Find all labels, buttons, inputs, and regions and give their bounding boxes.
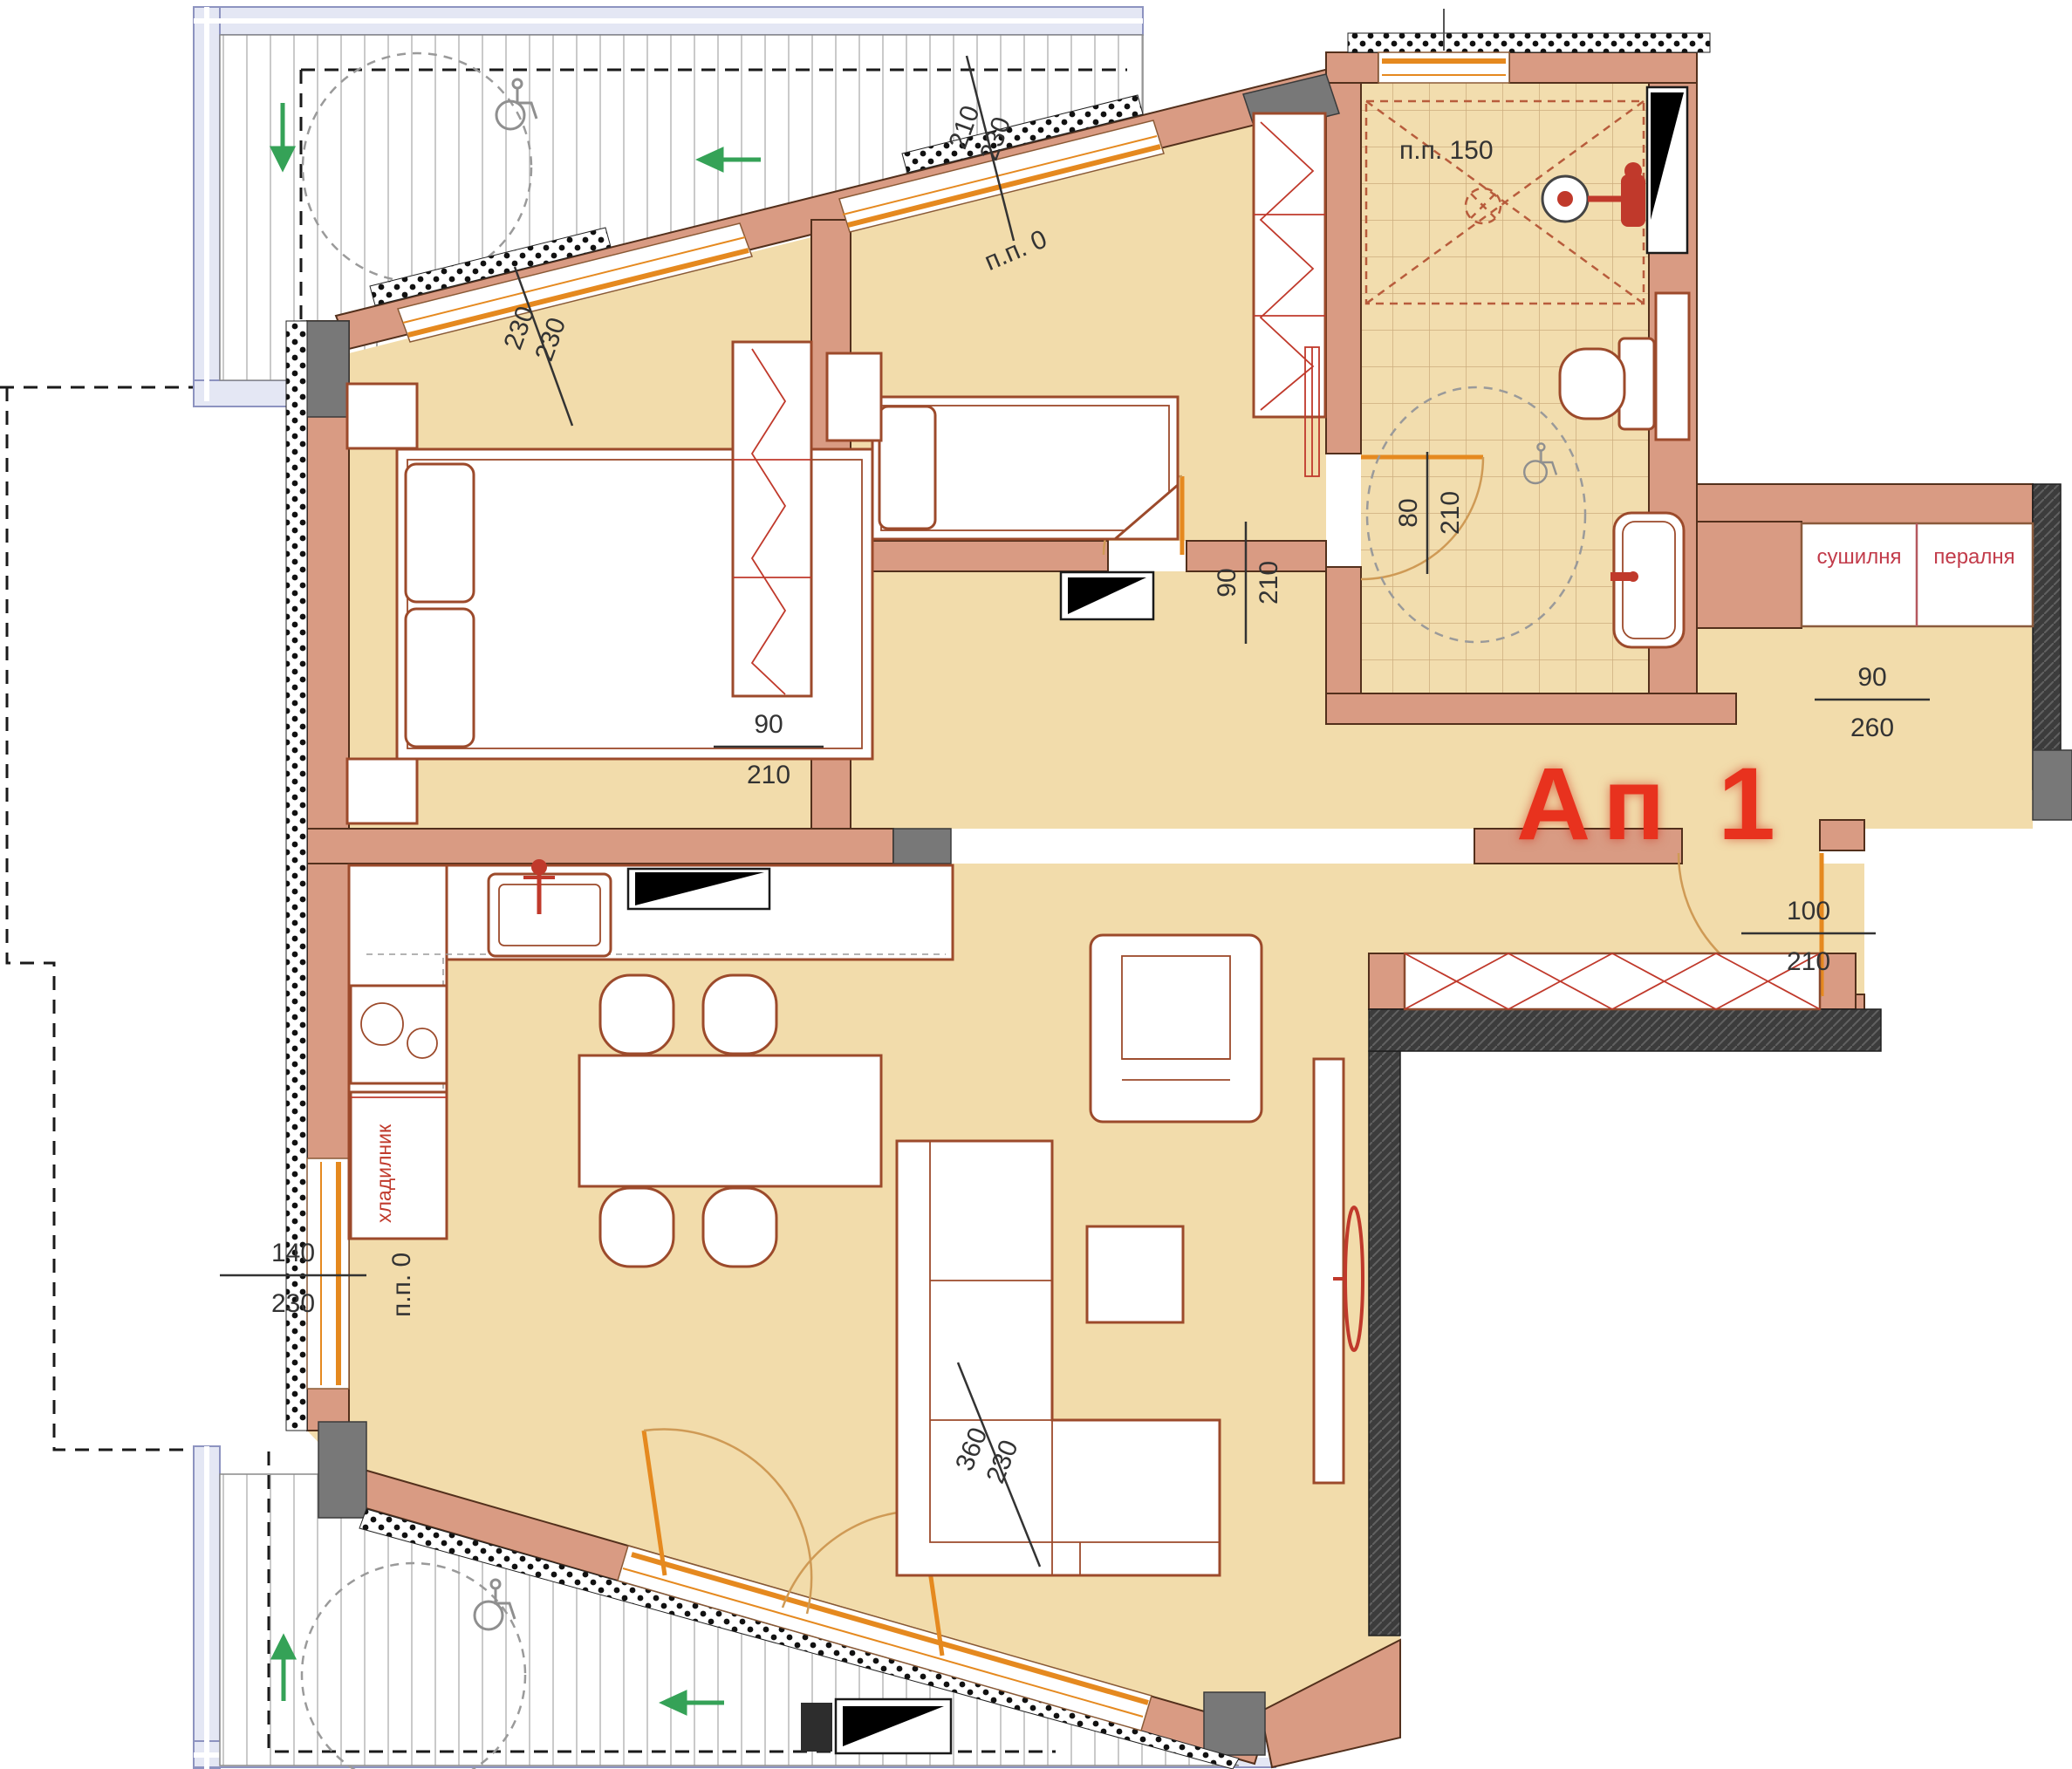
stove — [351, 986, 447, 1083]
bathroom-window — [1378, 52, 1509, 83]
living-window-left — [307, 1158, 349, 1389]
washer-dryer-niche: сушилня пералня — [1802, 523, 2033, 626]
toilet — [1560, 338, 1654, 429]
tv-unit — [1314, 1059, 1344, 1483]
washer-label: пералня — [1933, 545, 2014, 569]
shower-head-icon — [1621, 162, 1645, 227]
fridge-label: хладилник — [373, 1124, 395, 1223]
svg-text:90: 90 — [754, 710, 783, 739]
svg-text:210: 210 — [1787, 947, 1830, 976]
dryer-label: сушилня — [1817, 545, 1902, 569]
kitchen-sink — [489, 859, 611, 956]
nightstand — [827, 353, 881, 441]
fridge: хладилник — [351, 1092, 447, 1239]
radiator — [628, 869, 769, 909]
label-pp0-left: п.п. 0 — [387, 1253, 416, 1317]
svg-text:210: 210 — [1436, 491, 1465, 535]
floor-plan: сушилня пералня хладилник — [0, 0, 2072, 1769]
label-pp150: п.п. 150 — [1399, 136, 1494, 165]
pillow — [879, 406, 935, 529]
apartment-label: Ап 1 — [1516, 747, 1788, 862]
wardrobe — [1254, 113, 1325, 417]
radiator-hall — [1061, 572, 1153, 619]
svg-text:80: 80 — [1394, 498, 1423, 527]
pillow — [406, 464, 474, 602]
nightstand — [347, 384, 417, 448]
coffee-table — [1087, 1226, 1183, 1322]
hall-closet — [1405, 953, 1820, 1009]
armchair — [1091, 935, 1262, 1122]
svg-text:140: 140 — [271, 1239, 315, 1267]
svg-text:230: 230 — [271, 1289, 315, 1318]
svg-text:260: 260 — [1850, 714, 1894, 742]
bathroom-sink — [1610, 513, 1684, 647]
nightstand — [347, 759, 417, 823]
pillow — [406, 609, 474, 747]
chair — [600, 975, 674, 1054]
radiator — [801, 1699, 951, 1753]
svg-text:90: 90 — [1213, 568, 1241, 597]
dining-table — [579, 1055, 881, 1186]
svg-text:210: 210 — [1255, 561, 1283, 604]
svg-text:п.п. 0: п.п. 0 — [387, 1253, 416, 1317]
svg-text:210: 210 — [747, 761, 790, 789]
svg-text:90: 90 — [1857, 663, 1886, 692]
chair — [703, 975, 776, 1054]
radiator — [1647, 87, 1687, 253]
chair — [703, 1188, 776, 1267]
projection-dashed-line — [0, 387, 218, 1450]
chair — [600, 1188, 674, 1267]
wardrobe — [733, 342, 811, 696]
svg-text:100: 100 — [1787, 897, 1830, 925]
shelf — [1656, 293, 1689, 440]
